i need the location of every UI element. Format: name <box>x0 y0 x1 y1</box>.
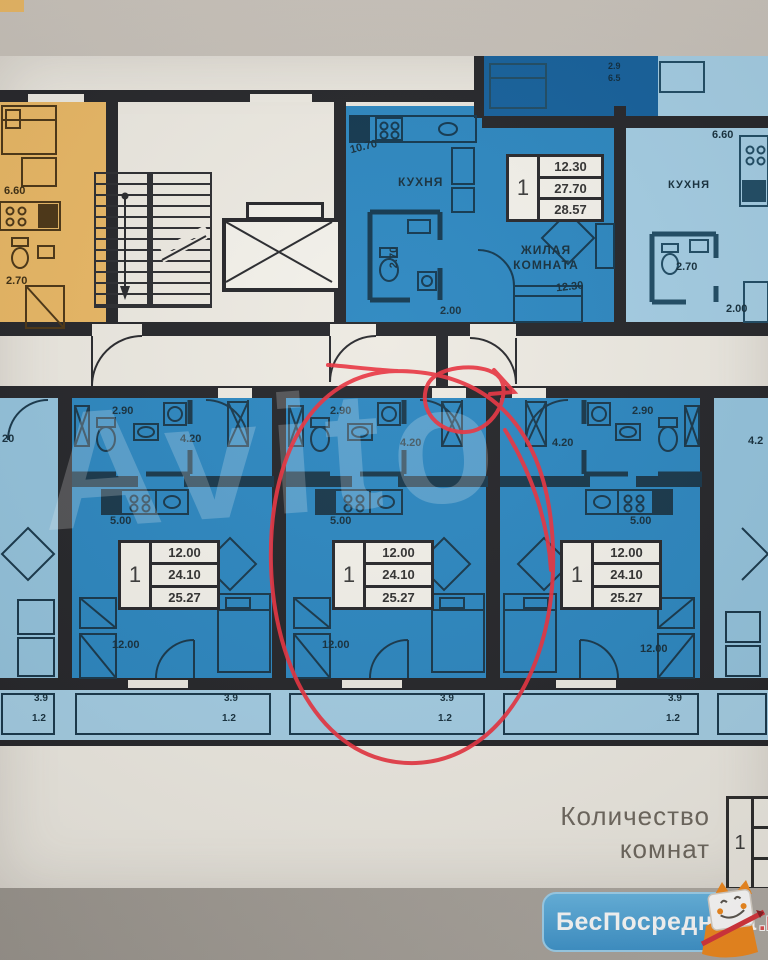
rooms-count: 1 <box>563 543 594 607</box>
legend-title: Количество комнат <box>450 800 710 865</box>
logo-mascot-icon <box>686 878 768 960</box>
room-area-label: 6.60 <box>712 130 733 141</box>
room-area-label: 4.20 <box>180 434 201 445</box>
area-value: 25.27 <box>594 588 659 607</box>
area-value: 24.10 <box>152 565 217 587</box>
area-value: 12.00 <box>594 543 659 565</box>
balcony-door-gap <box>556 680 616 688</box>
room-area-label: 4.2 <box>748 436 763 447</box>
balcony-dim: 3.9 <box>34 694 48 704</box>
balcony-strip <box>0 690 768 740</box>
party-wall <box>486 386 500 690</box>
legend-rows <box>754 799 768 887</box>
door-gap <box>470 324 516 336</box>
room-area-label: 4.20 <box>400 438 421 449</box>
area-value: 27.70 <box>540 179 601 201</box>
room-area-label: 6.60 <box>4 186 25 197</box>
corridor-south-wall <box>0 386 768 398</box>
balcony-door-gap <box>342 680 402 688</box>
top-loggia-room <box>482 56 658 118</box>
balcony-dim: 1.2 <box>438 714 452 724</box>
room-area-label: 2.70 <box>389 247 400 268</box>
area-value: 24.10 <box>594 565 659 587</box>
door-gap <box>92 324 142 336</box>
room-area-label: 12.00 <box>640 644 668 655</box>
area-value: 12.30 <box>540 157 601 179</box>
balcony-dim: 3.9 <box>440 694 454 704</box>
room-area-label: 5.00 <box>330 516 351 527</box>
door-gap <box>218 388 252 398</box>
door-gap <box>512 388 546 398</box>
area-value: 12.00 <box>152 543 217 565</box>
legend-rooms-box: 1 <box>726 796 768 890</box>
room-area-label: 5.00 <box>630 516 651 527</box>
room-area-label: 2.00 <box>726 304 747 315</box>
balcony-rail <box>0 740 768 746</box>
room-area-label: 12.00 <box>322 640 350 651</box>
wall <box>614 106 626 324</box>
door-stub-wall <box>436 336 448 388</box>
rooms-count: 1 <box>121 543 152 607</box>
loggia-dim: 2.9 <box>608 62 621 71</box>
legend-title-line2: комнат <box>450 833 710 866</box>
balcony-dim: 1.2 <box>32 714 46 724</box>
kitchen-label: КУХНЯ <box>398 176 443 188</box>
window <box>28 92 84 102</box>
legend-rooms-count: 1 <box>729 799 754 887</box>
kitchen-label: КУХНЯ <box>668 180 710 191</box>
balcony-dim: 1.2 <box>666 714 680 724</box>
balcony-door-gap <box>128 680 188 688</box>
room-area-label: 2.70 <box>676 262 697 273</box>
area-value: 24.10 <box>366 565 431 587</box>
elevator-shaft <box>222 218 342 292</box>
room-area-label: 5.00 <box>110 516 131 527</box>
apartment-info-box: 1 12.00 24.10 25.27 <box>560 540 662 610</box>
party-wall <box>700 386 714 690</box>
apartment-info-box: 1 12.30 27.70 28.57 <box>506 154 604 222</box>
balcony-dim: 1.2 <box>222 714 236 724</box>
legend-title-line1: Количество <box>450 800 710 833</box>
area-value: 12.00 <box>366 543 431 565</box>
room-area-label: 20 <box>2 434 14 445</box>
party-wall <box>58 386 72 690</box>
room-area-label: 2.70 <box>6 276 27 287</box>
living-room-label: КОМНАТА <box>498 259 594 271</box>
plan-edge-fragment <box>0 0 24 12</box>
apartment-info-box: 1 12.00 24.10 25.27 <box>118 540 220 610</box>
staircase <box>94 172 212 308</box>
unit-right <box>500 398 702 678</box>
room-area-label: 2.90 <box>632 406 653 417</box>
area-value: 25.27 <box>366 588 431 607</box>
rooms-count: 1 <box>335 543 366 607</box>
living-room-label: ЖИЛАЯ <box>498 244 594 256</box>
wall <box>474 56 484 118</box>
top-left-apartment <box>0 98 106 332</box>
apartment-info-box: 1 12.00 24.10 25.27 <box>332 540 434 610</box>
balcony-dim: 3.9 <box>668 694 682 704</box>
unit-left <box>72 398 274 678</box>
room-area-label: 2.90 <box>112 406 133 417</box>
party-wall <box>272 386 286 690</box>
staircase-divider <box>147 172 153 304</box>
window <box>250 92 312 102</box>
area-value: 25.27 <box>152 588 217 607</box>
room-area-label: 2.90 <box>330 406 351 417</box>
door-gap <box>330 324 376 336</box>
area-value: 28.57 <box>540 200 601 219</box>
floorplan-photo: 6.60 2.70 10.70 КУХНЯ 2.70 2.00 ЖИЛАЯ КО… <box>0 0 768 960</box>
door-gap <box>432 388 466 398</box>
room-area-label: 12.00 <box>112 640 140 651</box>
room-area-label: 2.00 <box>440 306 461 317</box>
unit-middle-highlighted <box>286 398 488 678</box>
room-area-label: 4.20 <box>552 438 573 449</box>
loggia-dim: 6.5 <box>608 74 621 83</box>
balcony-dim: 3.9 <box>224 694 238 704</box>
rooms-count: 1 <box>509 157 540 219</box>
